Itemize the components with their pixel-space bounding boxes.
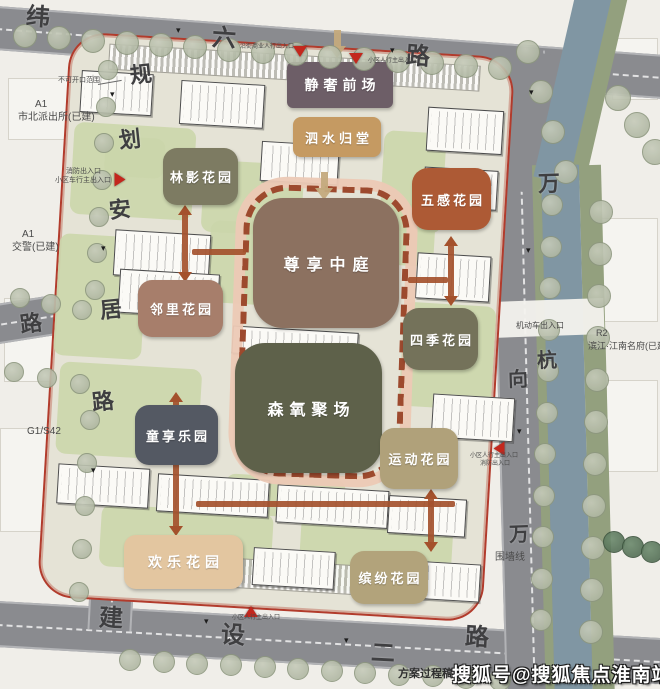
entrance-triangle-icon xyxy=(293,46,307,57)
flow-arrow-bar xyxy=(196,501,455,507)
flow-arrow-head-up xyxy=(178,205,192,215)
map-annotation: G1/S42 xyxy=(27,426,61,439)
street-tree xyxy=(540,236,562,258)
street-tree xyxy=(47,26,71,50)
road-name-char: 建 xyxy=(98,606,123,631)
street-tree xyxy=(70,374,90,394)
street-tree xyxy=(532,526,554,548)
street-tree xyxy=(531,568,553,590)
street-tree xyxy=(220,654,242,676)
traffic-direction-mark: ▾ xyxy=(390,46,395,55)
zone-label: 缤纷花园 xyxy=(350,551,428,604)
street-tree xyxy=(37,368,57,388)
street-tree xyxy=(530,609,552,631)
road-name-char: 万 xyxy=(538,173,561,196)
zone-label: 四季花园 xyxy=(403,308,478,370)
road-name-char: 杭 xyxy=(537,351,558,372)
map-annotation: 小区人行主出入口 xyxy=(470,453,518,461)
street-tree xyxy=(4,362,24,382)
watermark: 搜狐号@搜狐焦点淮南站 xyxy=(452,660,660,687)
street-tree xyxy=(287,658,309,680)
street-tree xyxy=(94,133,114,153)
street-tree xyxy=(536,402,558,424)
street-tree xyxy=(321,660,343,682)
flow-arrow-shaft xyxy=(182,213,188,274)
road-name-char: 设 xyxy=(220,623,245,648)
street-tree xyxy=(585,368,609,392)
entrance-triangle-icon xyxy=(115,173,126,187)
map-annotation: 小区人行主出入口 xyxy=(368,58,416,66)
street-tree xyxy=(534,443,556,465)
street-tree xyxy=(587,284,611,308)
flow-arrow-head-up xyxy=(424,489,438,499)
street-tree xyxy=(75,496,95,516)
street-tree xyxy=(149,33,173,57)
street-tree xyxy=(81,29,105,53)
flow-arrow-head-down xyxy=(424,542,438,552)
street-tree xyxy=(579,620,603,644)
street-tree xyxy=(153,651,175,673)
street-tree xyxy=(624,112,650,138)
street-tree xyxy=(584,410,608,434)
road-name-char: 路 xyxy=(405,44,431,70)
traffic-direction-mark: ▾ xyxy=(101,244,106,253)
road-name-char: 路 xyxy=(19,312,44,337)
street-tree xyxy=(41,294,61,314)
map-annotation: 小区人行主出入口 xyxy=(232,615,280,623)
street-tree xyxy=(581,536,605,560)
street-tree xyxy=(641,541,660,563)
road-name-char: 向 xyxy=(508,370,529,391)
flow-arrow-head-up xyxy=(444,236,458,246)
map-annotation: A1 xyxy=(35,99,47,112)
map-annotation: A1 xyxy=(22,229,34,242)
street-tree xyxy=(69,582,89,602)
traffic-direction-mark: ▾ xyxy=(204,617,209,626)
zone-label: 欢乐花园 xyxy=(124,535,243,589)
zone-label: 尊享中庭 xyxy=(253,198,399,328)
map-annotation: 机动车出入口 xyxy=(516,321,564,331)
map-annotation: 消防出入口 xyxy=(66,168,101,177)
map-annotation: R2 xyxy=(596,328,608,339)
street-tree xyxy=(254,656,276,678)
zone-label: 邻里花园 xyxy=(138,280,223,337)
road-name-char: 纬 xyxy=(25,5,51,31)
map-annotation: 不可开口范围 xyxy=(58,77,100,86)
zone-label: 静奢前场 xyxy=(287,62,393,108)
zone-label: 泗水归堂 xyxy=(293,117,381,157)
street-tree xyxy=(533,485,555,507)
road-name-char: 路 xyxy=(464,625,489,650)
road-name-char: 划 xyxy=(118,128,142,152)
street-tree xyxy=(89,207,109,227)
street-tree xyxy=(582,494,606,518)
road-name-char: 路 xyxy=(91,390,115,414)
road-name-char: 六 xyxy=(211,26,237,52)
zone-label: 森氧聚场 xyxy=(235,343,382,473)
street-tree xyxy=(119,649,141,671)
street-tree xyxy=(539,277,561,299)
master-plan-canvas: 静奢前场泗水归堂林影花园五感花园尊享中庭邻里花园四季花园森氧聚场童享乐园运动花园… xyxy=(0,0,660,689)
road-name-char: 二 xyxy=(370,641,395,666)
road-name-char: 居 xyxy=(99,298,123,322)
overlay-layer: 静奢前场泗水归堂林影花园五感花园尊享中庭邻里花园四季花园森氧聚场童享乐园运动花园… xyxy=(0,0,660,689)
map-annotation: 消防出入口 xyxy=(480,461,510,469)
street-tree xyxy=(183,35,207,59)
street-tree xyxy=(642,139,660,165)
street-tree xyxy=(588,242,612,266)
road-name-char: 安 xyxy=(108,198,132,222)
street-tree xyxy=(589,200,613,224)
zone-label: 五感花园 xyxy=(412,168,491,230)
street-tree xyxy=(454,54,478,78)
street-tree xyxy=(516,40,540,64)
traffic-direction-mark: ▾ xyxy=(517,427,522,436)
flow-arrow-bar xyxy=(408,277,448,283)
flow-arrow-bar xyxy=(192,249,246,255)
flow-arrow-head-down xyxy=(444,296,458,306)
map-annotation: 小区车行主出入口 xyxy=(55,177,111,186)
road-name-char: 规 xyxy=(129,63,153,87)
street-tree xyxy=(98,60,118,80)
street-tree xyxy=(72,300,92,320)
road-name-char: 万 xyxy=(509,525,530,546)
street-tree xyxy=(580,578,604,602)
flow-arrow-shaft xyxy=(448,244,454,298)
annotation-leader-line xyxy=(98,80,122,85)
street-tree xyxy=(488,56,512,80)
zone-label: 童享乐园 xyxy=(135,405,218,465)
traffic-direction-mark: ▾ xyxy=(110,90,115,99)
street-tree xyxy=(605,85,631,111)
street-tree xyxy=(318,45,342,69)
traffic-direction-mark: ▾ xyxy=(526,246,531,255)
street-tree xyxy=(96,97,116,117)
map-annotation: 市北派出所(已建) xyxy=(18,112,95,125)
street-tree xyxy=(541,194,563,216)
street-tree xyxy=(186,653,208,675)
flow-arrow-head-up xyxy=(169,392,183,402)
traffic-direction-mark: ▾ xyxy=(529,88,534,97)
traffic-direction-mark: ▾ xyxy=(176,26,181,35)
street-tree xyxy=(72,539,92,559)
street-tree xyxy=(583,452,607,476)
map-annotation: 沿街商业人行出入口 xyxy=(240,44,294,52)
street-tree xyxy=(10,288,30,308)
map-annotation: 围墙线 xyxy=(495,552,525,565)
street-tree xyxy=(115,31,139,55)
map-annotation: 滨江·江南名府(已建 xyxy=(588,341,660,352)
draft-note: 方案过程稿, xyxy=(398,665,456,681)
traffic-direction-mark: ▾ xyxy=(91,466,96,475)
zone-label: 运动花园 xyxy=(380,428,458,489)
map-annotation: 交警(已建) xyxy=(12,242,59,255)
entrance-triangle-icon xyxy=(349,53,363,64)
street-tree xyxy=(541,120,565,144)
zone-label: 林影花园 xyxy=(163,148,238,205)
traffic-direction-mark: ▾ xyxy=(344,636,349,645)
